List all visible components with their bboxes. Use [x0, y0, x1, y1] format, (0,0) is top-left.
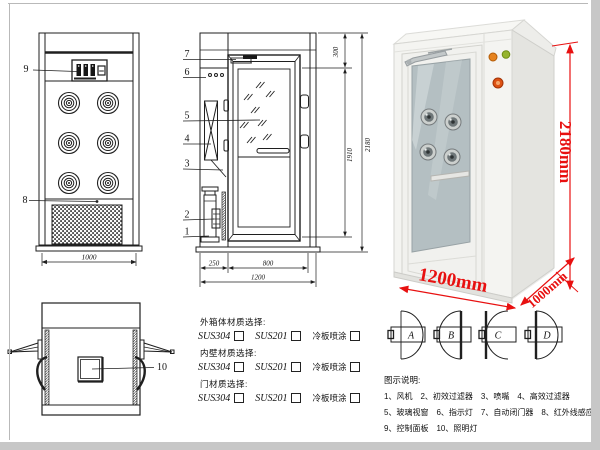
material-option-label: SUS304 — [198, 393, 230, 404]
material-option-label: 冷板喷涂 — [312, 361, 346, 373]
spec-sheet-page: 9 8 1000 — [0, 0, 600, 450]
legend-item: 1、风机 — [384, 391, 412, 402]
material-checkbox[interactable] — [350, 331, 360, 341]
material-checkbox[interactable] — [234, 362, 244, 372]
svg-text:C: C — [495, 331, 502, 342]
callout-3: 3 — [185, 159, 190, 170]
photo-nozzle — [445, 114, 461, 130]
material-option-label: SUS304 — [198, 331, 230, 342]
material-group-label: 门材质选择: — [200, 378, 382, 390]
legend-item: 10、照明灯 — [436, 423, 477, 434]
door-option-a[interactable]: A — [388, 311, 425, 359]
door-drawing — [224, 55, 309, 241]
callout-1: 1 — [185, 227, 190, 238]
material-checkbox[interactable] — [350, 362, 360, 372]
frame-strip-bottom — [0, 442, 600, 450]
callout-4: 4 — [185, 134, 190, 145]
material-group-label: 内壁材质选择: — [200, 347, 382, 359]
callout-10: 10 — [157, 362, 167, 373]
material-group-inner-wall: 内壁材质选择: SUS304 SUS201 冷板喷涂 — [196, 347, 382, 373]
product-photo — [394, 20, 556, 303]
photo-nozzle — [421, 109, 437, 125]
svg-text:D: D — [542, 331, 551, 342]
legend-item: 2、初效过滤器 — [420, 391, 472, 402]
indicator-lights-icon — [209, 74, 212, 77]
control-panel-icon — [72, 60, 107, 81]
callout-2: 2 — [185, 210, 190, 221]
material-option-label: SUS201 — [255, 393, 287, 404]
side-view-drawing: 7 6 5 4 3 2 1 300 1910 2180 250 800 1200 — [183, 33, 372, 287]
front-view-drawing: 9 8 1000 — [23, 33, 143, 266]
legend-row: 1、风机 2、初效过滤器 3、喷嘴 4、高效过滤器 — [384, 391, 586, 402]
material-checkbox[interactable] — [291, 331, 301, 341]
lighting-lamp-icon — [78, 357, 103, 382]
legend-row: 5、玻璃视窗 6、指示灯 7、自动闭门器 8、红外线感应器 — [384, 407, 586, 418]
door-option-c[interactable]: C — [479, 311, 516, 359]
callout-9: 9 — [24, 64, 29, 75]
dim-2180-label: 2180 — [364, 138, 372, 153]
legend: 图示说明: 1、风机 2、初效过滤器 3、喷嘴 4、高效过滤器 5、玻璃视窗 6… — [384, 374, 586, 434]
material-option-label: SUS201 — [255, 362, 287, 373]
frame-border-top — [8, 3, 588, 4]
hinge-icon — [301, 95, 309, 108]
callout-7: 7 — [185, 49, 190, 60]
legend-title: 图示说明: — [384, 374, 586, 386]
return-air-grille-icon — [52, 205, 122, 244]
material-checkbox[interactable] — [234, 393, 244, 403]
dim-300-label: 300 — [332, 46, 340, 58]
legend-item: 6、指示灯 — [436, 407, 472, 418]
photo-button-highlight — [496, 81, 500, 85]
top-view-drawing: 10 — [8, 303, 174, 415]
photo-dim-height: 2180mm — [556, 121, 575, 183]
material-selection: 外箱体材质选择: SUS304 SUS201 冷板喷涂 内壁材质选择: SUS3… — [196, 316, 382, 409]
legend-item: 4、高效过滤器 — [517, 391, 569, 402]
photo-nozzle — [444, 149, 460, 165]
legend-row: 9、控制面板 10、照明灯 — [384, 423, 586, 434]
frame-strip-right — [591, 0, 600, 450]
material-checkbox[interactable] — [291, 393, 301, 403]
material-group-outer-box: 外箱体材质选择: SUS304 SUS201 冷板喷涂 — [196, 316, 382, 342]
material-option-label: SUS304 — [198, 362, 230, 373]
door-wing-icon — [135, 340, 174, 390]
svg-text:B: B — [448, 331, 454, 342]
callout-5: 5 — [185, 111, 190, 122]
material-option-label: SUS201 — [255, 331, 287, 342]
door-option-b[interactable]: B — [434, 311, 471, 359]
photo-indicator-light-orange — [489, 53, 497, 61]
material-group-door: 门材质选择: SUS304 SUS201 冷板喷涂 — [196, 378, 382, 404]
legend-item: 7、自动闭门器 — [481, 407, 533, 418]
legend-item: 5、玻璃视窗 — [384, 407, 428, 418]
material-checkbox[interactable] — [350, 393, 360, 403]
svg-text:A: A — [407, 331, 415, 342]
dim-250-label: 250 — [209, 260, 220, 268]
callout-8: 8 — [23, 195, 28, 206]
material-group-label: 外箱体材质选择: — [200, 316, 382, 328]
material-option-label: 冷板喷涂 — [312, 392, 346, 404]
door-option-d[interactable]: D — [525, 311, 562, 359]
door-wing-icon — [8, 340, 47, 390]
material-checkbox[interactable] — [291, 362, 301, 372]
door-handle-icon — [257, 149, 289, 154]
dim-1910-label: 1910 — [346, 148, 354, 163]
photo-indicator-light-green — [502, 51, 510, 59]
callout-6: 6 — [185, 67, 190, 78]
legend-item: 9、控制面板 — [384, 423, 428, 434]
hinge-icon — [301, 135, 309, 148]
dim-800-label: 800 — [263, 260, 274, 268]
material-checkbox[interactable] — [234, 331, 244, 341]
frame-border-left — [9, 3, 10, 440]
dim-1200-label: 1200 — [251, 274, 266, 282]
dim-1000-label: 1000 — [82, 253, 97, 262]
hepa-filter-icon — [205, 101, 218, 160]
fan-icon — [201, 187, 219, 242]
legend-item: 3、喷嘴 — [481, 391, 509, 402]
photo-nozzle — [420, 144, 436, 160]
material-option-label: 冷板喷涂 — [312, 330, 346, 342]
